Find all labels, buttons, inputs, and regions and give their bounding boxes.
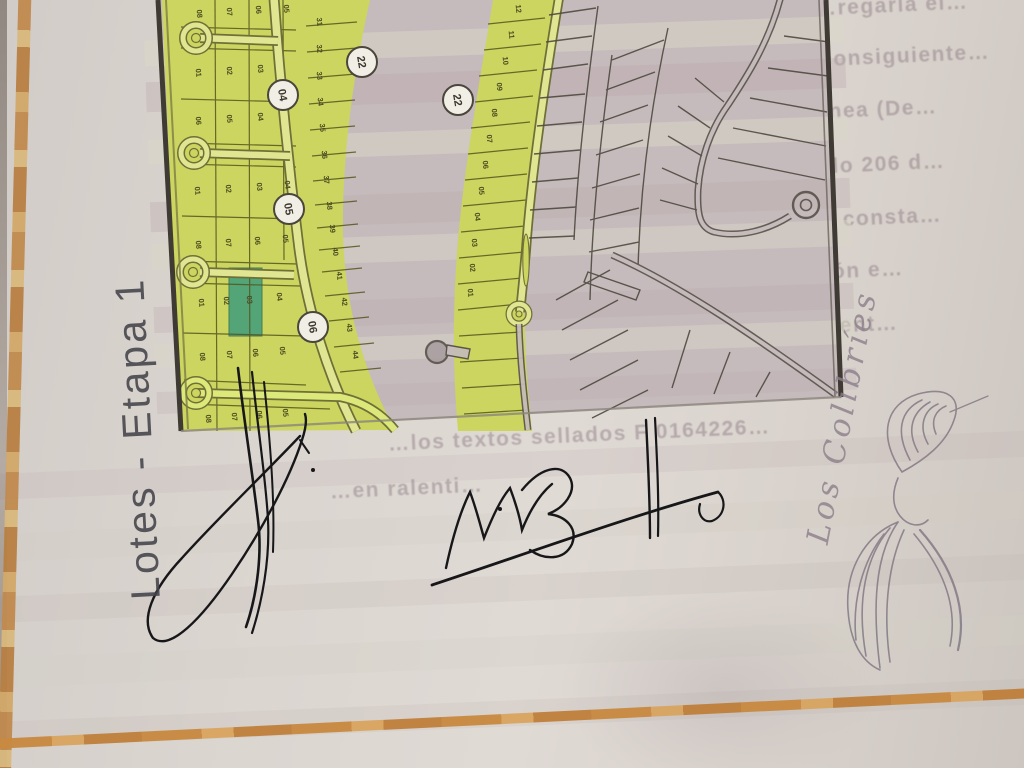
lot-number: 03 xyxy=(255,182,265,191)
lot-number: 01 xyxy=(466,288,476,297)
lot-number: 08 xyxy=(198,352,208,361)
lot-number: 40 xyxy=(331,247,341,256)
lot-number: 07 xyxy=(225,7,235,16)
lot-number: 02 xyxy=(468,263,478,272)
lot-number: 06 xyxy=(481,160,491,169)
lot-number: 05 xyxy=(281,234,291,243)
lot-number: 03 xyxy=(245,295,255,304)
lot-number: 08 xyxy=(204,414,214,423)
lot-number: 05 xyxy=(477,186,487,195)
lot-number: 11 xyxy=(507,30,517,39)
lot-number: 01 xyxy=(197,298,207,307)
lot-number: 06 xyxy=(254,5,264,14)
lot-number: 03 xyxy=(256,64,266,73)
lot-number: 01 xyxy=(194,68,204,77)
lot-number: 10 xyxy=(501,56,511,65)
signature-2 xyxy=(432,418,724,585)
lot-number: 33 xyxy=(315,71,325,80)
block-badge-number: 22 xyxy=(450,93,464,107)
lot-number: 05 xyxy=(225,114,235,123)
lot-number: 42 xyxy=(340,297,350,306)
hummingbird-drawing xyxy=(848,392,988,670)
lot-number: 08 xyxy=(195,9,205,18)
lot-number: 31 xyxy=(315,17,325,26)
lot-number: 02 xyxy=(225,66,235,75)
lot-number: 08 xyxy=(490,108,500,117)
lot-number: 05 xyxy=(281,408,291,417)
lot-number: 02 xyxy=(224,184,234,193)
lot-number: 01 xyxy=(193,186,203,195)
lot-number: 36 xyxy=(320,150,330,159)
lot-number: 09 xyxy=(495,82,505,91)
lot-number: 07 xyxy=(225,350,235,359)
block-badge-number: 22 xyxy=(354,55,368,69)
lot-number: 07 xyxy=(224,238,234,247)
lot-number: 39 xyxy=(328,224,338,233)
lot-number: 07 xyxy=(230,412,240,421)
lot-number: 03 xyxy=(470,238,480,247)
lot-number: 38 xyxy=(325,201,335,210)
lot-number: 32 xyxy=(315,44,325,53)
lot-number: 41 xyxy=(335,271,345,280)
lot-number: 12 xyxy=(514,4,524,13)
lot-number: 05 xyxy=(278,346,288,355)
lot-number: 43 xyxy=(345,323,355,332)
lot-number: 06 xyxy=(194,116,204,125)
lot-number: 37 xyxy=(322,175,332,184)
lot-number: 08 xyxy=(194,240,204,249)
lot-number: 02 xyxy=(222,296,232,305)
block-badge-number: 05 xyxy=(281,202,295,216)
lot-number: 06 xyxy=(251,348,261,357)
lot-number: 35 xyxy=(318,123,328,132)
lot-number: 06 xyxy=(253,236,263,245)
lot-number: 05 xyxy=(282,4,292,13)
photographed-document: …regarla el……por consiguiente……rio winne… xyxy=(0,0,1024,768)
block-badge-number: 06 xyxy=(305,320,319,334)
lot-number: 07 xyxy=(485,134,495,143)
